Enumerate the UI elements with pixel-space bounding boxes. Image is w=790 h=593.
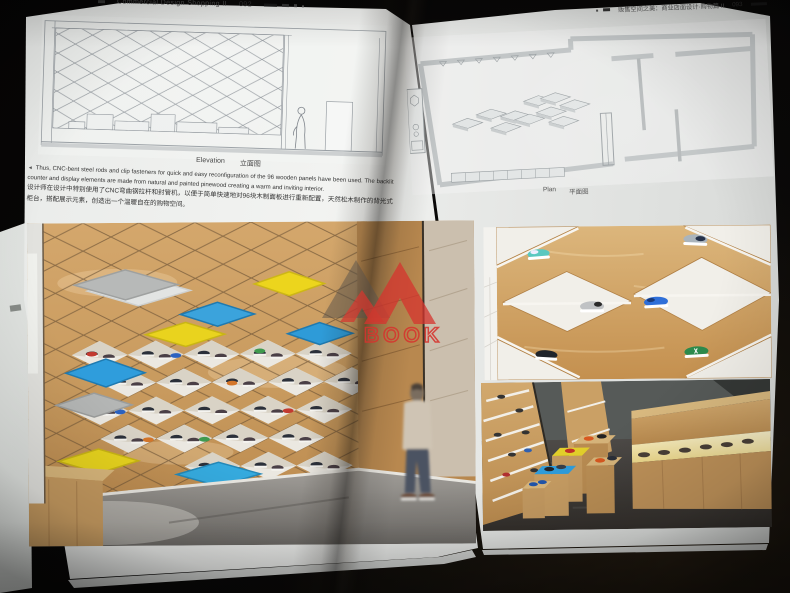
plan-caption: Plan 平面图 [543,186,589,197]
shelf-closeup-photo [483,225,771,380]
watermark-logo: BOOK [306,248,456,346]
left-page-number: 092 [239,1,252,8]
plan-caption-zh: 平面图 [569,186,589,196]
watermark-text: BOOK [364,324,443,346]
header-trim-marks [750,2,766,6]
paragraph-marker-icon: ◄ [28,164,33,173]
header-trim-marks [264,4,304,7]
backlit-counter [631,391,772,511]
store-interior-photo [481,379,772,531]
right-page-number: 093 [732,1,743,8]
elevation-caption-zh: 立面图 [240,158,261,169]
plan-caption-en: Plan [543,186,556,196]
door [325,102,353,152]
elevation-caption-en: Elevation [196,157,225,168]
elevation-drawing [38,15,392,166]
book-photo-scene: Commercial Design Shopping II 092 [0,0,790,593]
header-trim-marks [98,0,105,3]
header-trim-marks [596,8,610,11]
plan-drawing [404,19,774,196]
plan-counter [407,89,425,154]
